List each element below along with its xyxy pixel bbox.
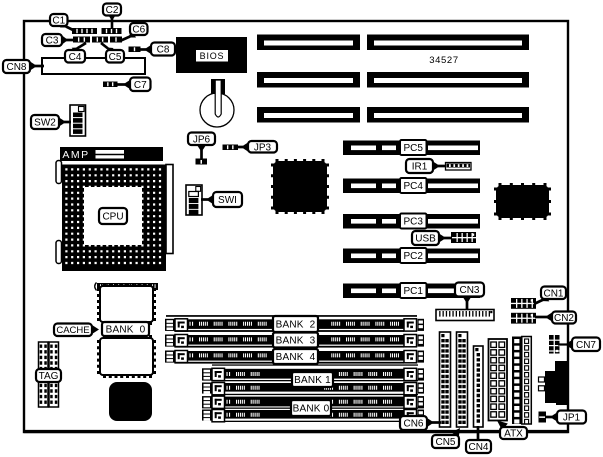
svg-text:C2: C2: [106, 5, 119, 16]
svg-text:BANK 0: BANK 0: [293, 404, 330, 415]
svg-text:CN8: CN8: [6, 62, 26, 73]
svg-text:C7: C7: [134, 80, 147, 91]
svg-text:AMP: AMP: [62, 149, 89, 161]
svg-text:PC5: PC5: [404, 143, 424, 154]
svg-text:JP6: JP6: [193, 134, 211, 145]
svg-text:PC3: PC3: [404, 217, 424, 228]
svg-text:ATX: ATX: [504, 429, 523, 440]
svg-text:SW2: SW2: [34, 118, 56, 129]
svg-text:BANK 3: BANK 3: [276, 336, 316, 347]
svg-text:BANK 4: BANK 4: [276, 352, 316, 363]
svg-text:C6: C6: [132, 25, 145, 36]
svg-text:JP1: JP1: [563, 413, 581, 424]
svg-text:TAG: TAG: [39, 371, 59, 382]
svg-text:PC1: PC1: [404, 286, 424, 297]
svg-text:CN3: CN3: [459, 285, 479, 296]
svg-text:SWI: SWI: [218, 195, 237, 206]
svg-text:BANK 1: BANK 1: [294, 375, 331, 386]
svg-text:CN6: CN6: [403, 419, 423, 430]
svg-text:C8: C8: [157, 45, 170, 56]
svg-text:PC4: PC4: [404, 181, 424, 192]
svg-text:CN2: CN2: [554, 313, 574, 324]
svg-text:CPU: CPU: [102, 212, 123, 223]
svg-text:BANK 0: BANK 0: [106, 325, 146, 336]
svg-text:CN7: CN7: [576, 340, 596, 351]
svg-text:C1: C1: [52, 16, 65, 27]
svg-text:CACHE: CACHE: [56, 325, 89, 336]
svg-text:C5: C5: [109, 52, 122, 63]
svg-text:34527: 34527: [429, 55, 458, 66]
svg-text:PC2: PC2: [404, 251, 424, 262]
svg-text:C3: C3: [46, 36, 59, 47]
svg-text:BIOS: BIOS: [200, 51, 225, 61]
svg-text:CN1: CN1: [543, 288, 563, 299]
svg-text:IR1: IR1: [412, 162, 428, 173]
svg-text:CN5: CN5: [435, 437, 455, 448]
svg-text:USB: USB: [415, 234, 436, 245]
svg-text:CN4: CN4: [468, 442, 488, 453]
svg-text:C4: C4: [69, 52, 82, 63]
svg-text:JP3: JP3: [254, 142, 272, 153]
svg-text:BANK 2: BANK 2: [276, 320, 316, 331]
